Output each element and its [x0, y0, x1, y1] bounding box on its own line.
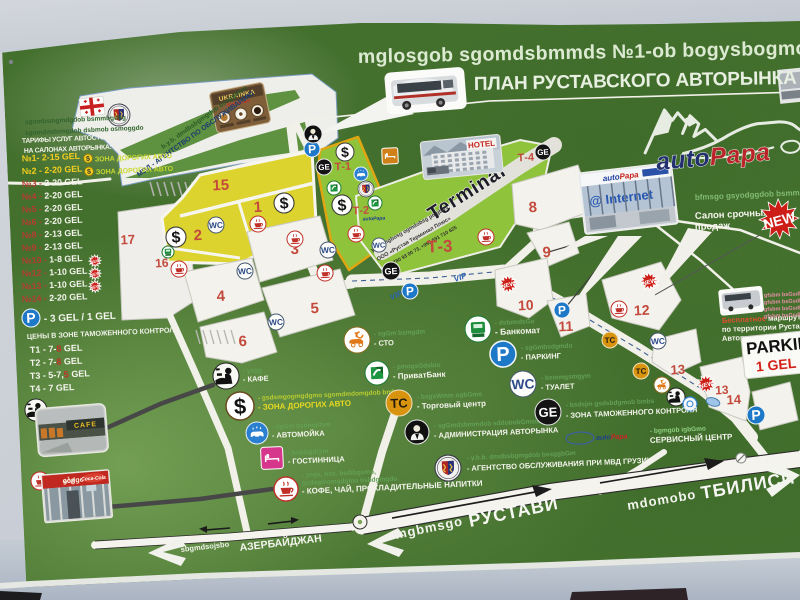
svg-text:- СТО: - СТО [374, 338, 395, 348]
svg-text:$: $ [171, 229, 181, 246]
svg-text:WC: WC [209, 220, 223, 231]
svg-text:$: $ [86, 156, 90, 163]
svg-text:ТС: ТС [636, 367, 647, 376]
svg-text:$: $ [337, 197, 347, 214]
svg-text:WC: WC [269, 317, 283, 328]
svg-text:P: P [558, 303, 567, 317]
svg-text:продаж: продаж [695, 220, 731, 233]
svg-text:P: P [751, 407, 761, 423]
svg-text:P: P [496, 344, 510, 367]
svg-text:6: 6 [238, 333, 247, 350]
svg-text:autoPapa: autoPapa [363, 216, 386, 223]
svg-text:$: $ [233, 394, 246, 420]
svg-text:WC: WC [373, 240, 386, 250]
svg-text:- ТУАЛЕТ: - ТУАЛЕТ [541, 382, 575, 393]
svg-text:9: 9 [542, 244, 551, 261]
svg-text:Т-4: Т-4 [517, 152, 535, 165]
svg-text:$: $ [279, 195, 289, 212]
svg-text:GE: GE [538, 404, 558, 420]
svg-text:4: 4 [216, 288, 226, 305]
svg-text:8: 8 [528, 199, 537, 216]
svg-text:1: 1 [253, 199, 262, 216]
svg-text:- ПАРКИНГ: - ПАРКИНГ [521, 351, 562, 362]
svg-text:15: 15 [212, 177, 229, 195]
svg-text:WC: WC [651, 336, 665, 347]
svg-text:12: 12 [634, 302, 650, 319]
svg-text:GE: GE [537, 148, 550, 158]
svg-text:- КАФЕ: - КАФЕ [243, 374, 269, 384]
svg-text:2: 2 [193, 227, 202, 244]
svg-text:5: 5 [310, 300, 319, 317]
svg-text:17: 17 [120, 232, 135, 248]
svg-text:13: 13 [670, 362, 685, 378]
svg-text:Т-1: Т-1 [334, 161, 351, 174]
svg-text:10: 10 [518, 297, 534, 314]
svg-text:$: $ [87, 169, 91, 176]
svg-text:$: $ [341, 144, 350, 160]
svg-text:P: P [26, 310, 36, 326]
svg-text:GE: GE [384, 266, 397, 277]
svg-text:Т4 - 7 GEL: Т4 - 7 GEL [30, 382, 75, 394]
svg-text:ТС: ТС [604, 336, 615, 345]
svg-text:Т-3: Т-3 [427, 236, 453, 256]
svg-text:WC: WC [321, 245, 335, 256]
svg-text:- Банкомат: - Банкомат [495, 325, 541, 337]
svg-text:11: 11 [558, 318, 574, 335]
svg-text:autoPapa: autoPapa [596, 433, 628, 441]
svg-text:ТС: ТС [390, 395, 409, 411]
svg-text:WC: WC [238, 266, 252, 277]
svg-text:14: 14 [726, 392, 742, 408]
svg-text:WC: WC [511, 376, 535, 392]
svg-text:P: P [406, 284, 415, 298]
svg-text:GE: GE [318, 163, 331, 173]
svg-text:P: P [308, 142, 317, 156]
